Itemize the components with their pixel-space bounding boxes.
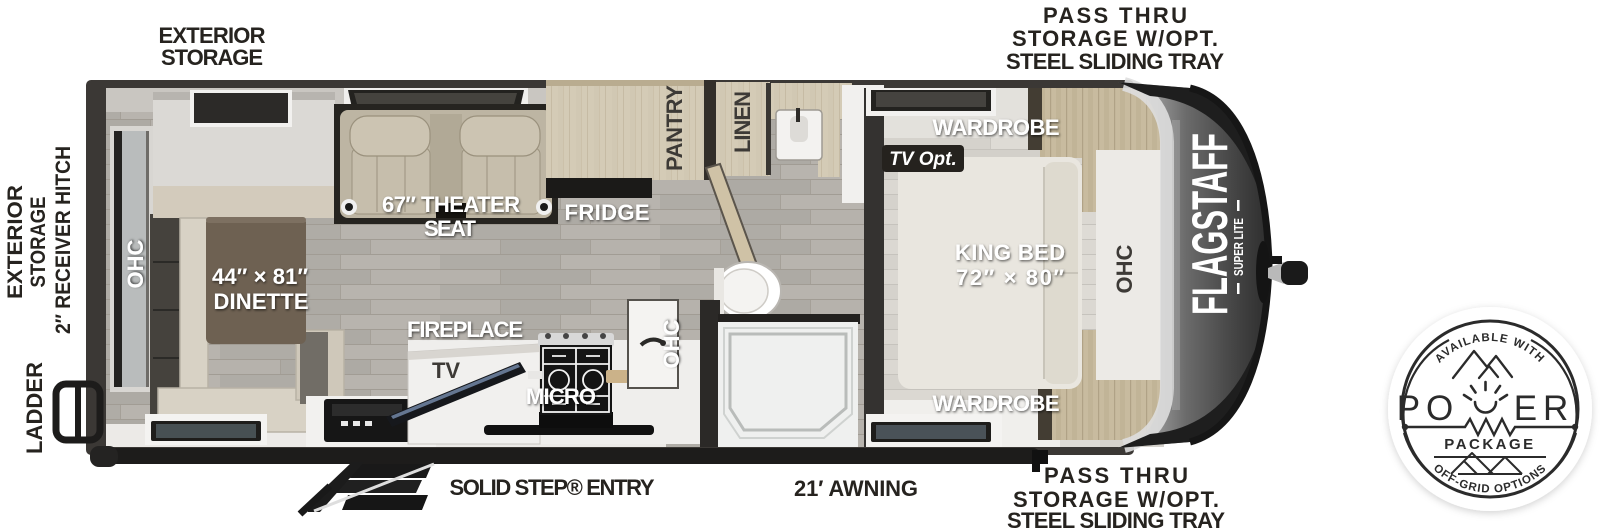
svg-text:LADDER: LADDER [22, 362, 47, 454]
svg-text:72″ × 80″: 72″ × 80″ [956, 265, 1064, 290]
svg-text:OHC: OHC [1112, 244, 1137, 293]
svg-text:STORAGE W/OPT.: STORAGE W/OPT. [1012, 26, 1218, 51]
svg-text:OHC: OHC [123, 239, 148, 288]
svg-text:OHC: OHC [659, 319, 684, 368]
svg-text:EXTERIOR: EXTERIOR [4, 185, 27, 299]
svg-text:LINEN: LINEN [730, 91, 755, 153]
svg-text:SEAT: SEAT [424, 216, 477, 241]
svg-text:PASS THRU: PASS THRU [1044, 463, 1188, 488]
svg-text:KING BED: KING BED [955, 240, 1065, 265]
svg-text:FLAGSTAFF: FLAGSTAFF [1182, 133, 1238, 315]
svg-text:SUPER LITE: SUPER LITE [1231, 218, 1246, 276]
svg-text:STORAGE: STORAGE [161, 45, 263, 70]
svg-text:SOLID STEP® ENTRY: SOLID STEP® ENTRY [450, 475, 655, 500]
svg-text:TV Opt.: TV Opt. [889, 149, 957, 170]
svg-text:PACKAGE: PACKAGE [1444, 436, 1535, 453]
svg-text:PANTRY: PANTRY [662, 85, 687, 171]
svg-text:2″ RECEIVER HITCH: 2″ RECEIVER HITCH [52, 146, 75, 334]
svg-text:STORAGE: STORAGE [27, 197, 50, 288]
svg-text:FRIDGE: FRIDGE [565, 200, 650, 225]
svg-text:MICRO: MICRO [526, 384, 596, 409]
svg-text:PO: PO [1397, 389, 1460, 428]
svg-text:67″ THEATER: 67″ THEATER [382, 192, 520, 217]
svg-text:FIREPLACE: FIREPLACE [407, 317, 523, 342]
svg-text:PASS THRU: PASS THRU [1043, 3, 1187, 28]
svg-text:WARDROBE: WARDROBE [933, 391, 1060, 416]
svg-text:21′ AWNING: 21′ AWNING [794, 476, 918, 501]
svg-text:WARDROBE: WARDROBE [933, 115, 1060, 140]
svg-text:ER: ER [1514, 389, 1575, 428]
svg-text:44″ × 81″: 44″ × 81″ [212, 264, 308, 289]
svg-text:STEEL SLIDING TRAY: STEEL SLIDING TRAY [1006, 49, 1224, 74]
svg-text:TV: TV [432, 358, 460, 383]
svg-text:STEEL SLIDING TRAY: STEEL SLIDING TRAY [1007, 508, 1225, 530]
svg-text:DINETTE: DINETTE [214, 289, 309, 314]
